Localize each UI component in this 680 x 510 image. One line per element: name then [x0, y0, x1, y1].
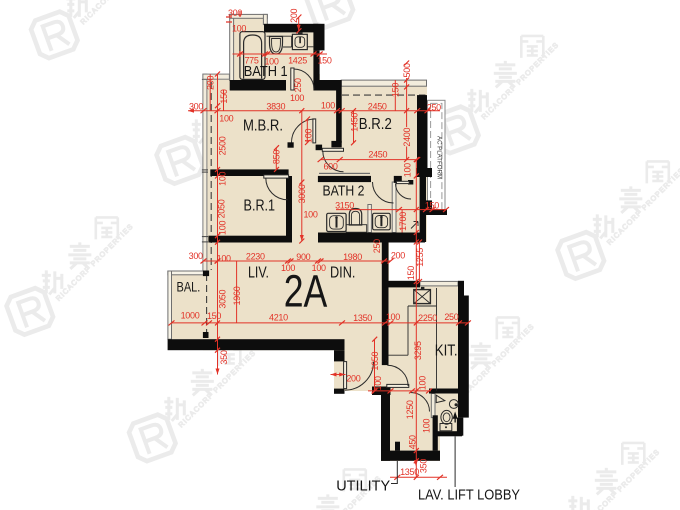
svg-text:200: 200 — [391, 250, 405, 260]
svg-text:100: 100 — [232, 24, 246, 34]
svg-text:150: 150 — [219, 89, 229, 103]
svg-text:200: 200 — [346, 374, 360, 384]
svg-text:100: 100 — [386, 312, 400, 322]
svg-text:150: 150 — [391, 83, 401, 97]
svg-text:2400: 2400 — [402, 127, 412, 146]
svg-text:150: 150 — [425, 200, 439, 210]
svg-text:250: 250 — [372, 239, 382, 253]
svg-text:350: 350 — [419, 459, 429, 473]
svg-text:100: 100 — [403, 163, 413, 177]
svg-text:100: 100 — [219, 114, 233, 124]
svg-text:2230: 2230 — [246, 251, 265, 261]
svg-text:150: 150 — [317, 56, 331, 66]
svg-text:3830: 3830 — [266, 101, 285, 111]
svg-text:M.B.R.: M.B.R. — [243, 118, 283, 135]
svg-text:3050: 3050 — [218, 289, 228, 308]
svg-text:100: 100 — [304, 129, 314, 143]
svg-text:1980: 1980 — [343, 252, 362, 262]
svg-text:BAL.: BAL. — [177, 280, 201, 295]
svg-text:100: 100 — [217, 253, 231, 263]
svg-text:300: 300 — [228, 8, 242, 18]
svg-text:B.R.1: B.R.1 — [244, 198, 276, 215]
svg-text:100: 100 — [417, 376, 427, 390]
svg-text:100: 100 — [218, 221, 228, 235]
svg-text:3000: 3000 — [297, 184, 307, 203]
svg-text:900: 900 — [296, 252, 310, 262]
svg-text:300: 300 — [189, 102, 203, 112]
svg-text:200: 200 — [205, 76, 215, 90]
svg-text:2450: 2450 — [368, 150, 387, 160]
svg-text:850: 850 — [272, 150, 282, 164]
svg-text:2450: 2450 — [368, 101, 387, 111]
svg-text:1000: 1000 — [181, 311, 200, 321]
svg-text:1255: 1255 — [415, 248, 425, 267]
svg-text:2050: 2050 — [217, 199, 227, 218]
svg-text:AC PLATFORM: AC PLATFORM — [436, 136, 443, 179]
svg-text:450: 450 — [408, 435, 418, 449]
svg-text:600: 600 — [323, 162, 337, 172]
svg-text:200: 200 — [289, 8, 299, 22]
svg-text:100: 100 — [421, 419, 431, 433]
svg-text:2A: 2A — [284, 266, 328, 317]
svg-text:1250: 1250 — [405, 400, 415, 419]
svg-text:KIT.: KIT. — [435, 343, 458, 360]
svg-text:250: 250 — [427, 102, 441, 112]
svg-text:1700: 1700 — [398, 212, 408, 231]
svg-text:1650: 1650 — [370, 351, 380, 370]
svg-text:LAV. LIFT LOBBY: LAV. LIFT LOBBY — [418, 488, 520, 504]
svg-text:150: 150 — [406, 266, 416, 280]
svg-text:250: 250 — [444, 312, 458, 322]
svg-text:1350: 1350 — [400, 467, 419, 477]
svg-text:1425: 1425 — [288, 56, 307, 66]
svg-text:100: 100 — [373, 376, 383, 390]
svg-text:BATH 1: BATH 1 — [244, 64, 288, 80]
svg-text:300: 300 — [189, 251, 203, 261]
svg-text:B.R.2: B.R.2 — [359, 116, 392, 133]
svg-text:1960: 1960 — [232, 286, 242, 305]
svg-text:2500: 2500 — [218, 136, 228, 155]
svg-text:100: 100 — [218, 171, 228, 185]
svg-text:LIV.: LIV. — [248, 265, 269, 282]
svg-text:3150: 3150 — [335, 200, 354, 210]
svg-text:UTILITY: UTILITY — [336, 478, 390, 495]
svg-text:1350: 1350 — [353, 313, 372, 323]
svg-text:250: 250 — [293, 78, 303, 92]
svg-text:100: 100 — [321, 101, 335, 111]
svg-text:150: 150 — [207, 311, 221, 321]
svg-text:100: 100 — [290, 93, 304, 103]
svg-text:3295: 3295 — [413, 341, 423, 360]
svg-text:2250: 2250 — [418, 313, 437, 323]
svg-text:100: 100 — [303, 210, 317, 220]
svg-text:350: 350 — [219, 350, 229, 364]
svg-text:500: 500 — [402, 63, 412, 77]
svg-text:DIN.: DIN. — [330, 265, 355, 282]
svg-text:BATH 2: BATH 2 — [323, 184, 365, 200]
